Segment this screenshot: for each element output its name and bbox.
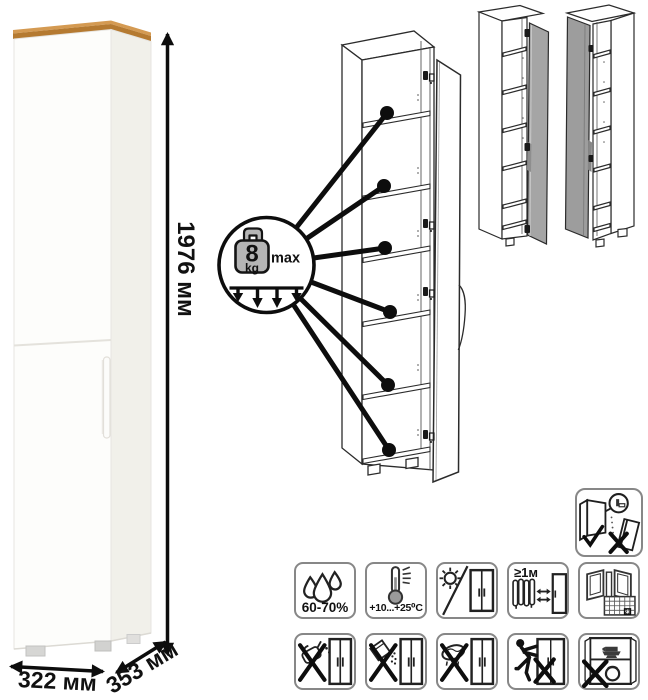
thermometer-icon <box>389 567 411 604</box>
water-drops-icon <box>304 572 341 602</box>
no-solvents-icon <box>294 633 356 690</box>
cabinet-front <box>14 30 111 650</box>
distance-arrows-icon <box>536 589 550 603</box>
product-sheet: 1976 мм 322 мм 353 мм <box>0 0 648 700</box>
no-direct-sunlight-icon <box>436 562 498 619</box>
cabinet-foot <box>95 641 111 651</box>
cabinet-body <box>13 21 151 657</box>
temperature-range-icon: +10...+25⁰C <box>365 562 427 619</box>
door-handle <box>104 357 111 438</box>
wardrobe-icon <box>471 570 493 611</box>
cabinet-foot <box>26 646 45 656</box>
width-dimension-label: 322 мм <box>17 666 97 696</box>
no-dragging-icon <box>507 633 569 690</box>
weight-unit: kg <box>245 261 259 275</box>
gray-door-left <box>566 17 591 238</box>
no-wet-cloth-icon <box>436 633 498 690</box>
wireframe-foot <box>406 458 418 469</box>
calendar-icon: 21 <box>604 597 635 616</box>
anchor-to-wall-icon <box>577 490 641 555</box>
anti-tip-warning-icon <box>575 488 643 557</box>
door-variant-left <box>566 5 635 247</box>
door-variant-right <box>479 6 549 247</box>
cabinet-foot <box>127 635 140 644</box>
cabinet-side <box>111 30 151 642</box>
wardrobe-icon <box>401 639 422 684</box>
calendar-day: 21 <box>625 609 631 615</box>
open-door <box>433 60 461 482</box>
no-overloading-icon <box>578 633 640 690</box>
shelf-load-diagram: 8 kg max <box>200 15 500 520</box>
door-variant-diagrams <box>470 0 648 262</box>
wardrobe-icon <box>472 639 493 684</box>
temperature-label: +10...+25⁰C <box>367 602 425 614</box>
humidity-label: 60-70% <box>296 600 354 615</box>
ventilate-room-icon: 21 <box>578 562 640 619</box>
humidity-range-icon: 60-70% <box>294 562 356 619</box>
no-abrasive-powder-icon <box>365 633 427 690</box>
height-dimension-label: 1976 мм <box>172 221 199 317</box>
wardrobe-icon <box>330 639 351 684</box>
min-distance-from-heat-icon: ≥1м <box>507 562 569 619</box>
open-window-icon <box>587 570 631 600</box>
wardrobe-icon <box>553 574 566 613</box>
depth-dimension-label: 353 мм <box>101 636 182 699</box>
radiator-icon <box>513 579 534 609</box>
kettlebell-icon <box>606 667 619 680</box>
wireframe-foot <box>368 464 380 475</box>
wireframe-cabinet <box>342 31 465 482</box>
distance-label: ≥1м <box>514 565 538 580</box>
cabinet-photo-with-dimensions: 1976 мм 322 мм 353 мм <box>0 0 200 700</box>
max-label: max <box>271 251 300 267</box>
